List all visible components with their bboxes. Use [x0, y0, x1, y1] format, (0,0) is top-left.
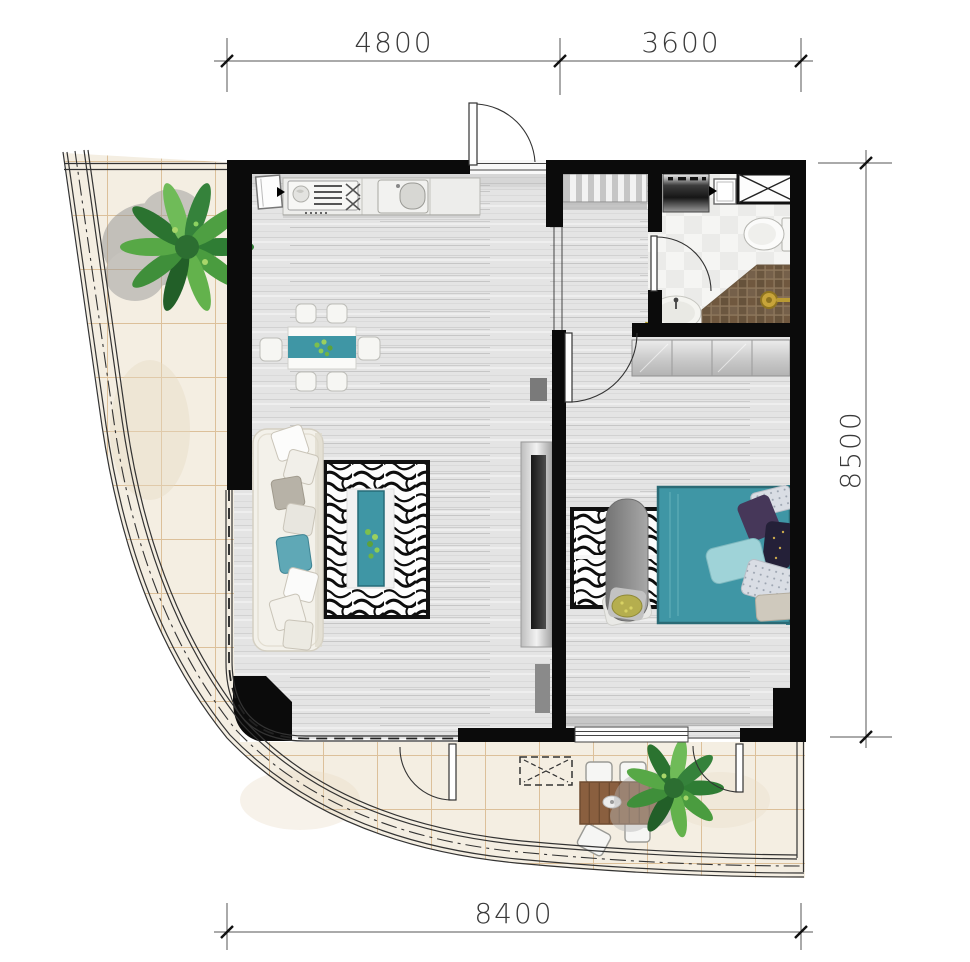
wall-top-right — [546, 160, 806, 174]
washing-machine-icon — [663, 174, 709, 212]
dining-chair — [296, 372, 316, 391]
outdoor-chair — [586, 762, 612, 783]
dim-label-4800: 4800 — [354, 26, 433, 59]
dining-chair — [327, 372, 347, 391]
bedroom-bench — [601, 499, 652, 626]
cooktop-burners-icon — [288, 181, 360, 214]
dim-label-8500: 8500 — [834, 410, 867, 489]
dining-chair — [296, 304, 316, 323]
wall-right — [790, 160, 806, 742]
wall-living-bedroom — [552, 330, 566, 742]
entry-door — [469, 103, 535, 165]
wall-entry-stub — [546, 174, 563, 227]
entry-threshold — [470, 160, 546, 174]
coffee-table — [358, 491, 384, 586]
table-runner — [288, 336, 356, 358]
wall-bath-south — [632, 323, 792, 337]
wall-left — [227, 160, 252, 490]
kitchen-counter — [256, 175, 480, 218]
bedroom-wardrobe — [632, 340, 790, 376]
kitchen-sink-icon — [378, 180, 428, 213]
dim-label-8400: 8400 — [474, 897, 553, 930]
hall-closet — [563, 174, 647, 209]
wall-corner-block — [773, 688, 806, 742]
bedroom-window — [575, 727, 688, 742]
pouf — [612, 595, 642, 617]
floor-plan-drawing: 4800 3600 8500 8400 — [0, 0, 970, 962]
shaft-cross-icon — [738, 174, 798, 203]
dim-label-3600: 3600 — [641, 26, 720, 59]
bed — [658, 485, 799, 625]
dining-chair — [327, 304, 347, 323]
floor-plan-canvas: 4800 3600 8500 8400 — [0, 0, 970, 962]
toilet-icon — [744, 218, 792, 251]
dining-chair — [358, 337, 380, 360]
sofa — [253, 424, 323, 651]
dimension-top: 4800 3600 — [214, 26, 813, 95]
dining-chair — [260, 338, 282, 361]
wall-top-left — [227, 160, 470, 174]
tv-screen — [531, 455, 546, 629]
wall-bottom-mid — [458, 728, 575, 742]
dimension-right: 8500 — [818, 150, 892, 748]
wall-bath-left-top — [648, 174, 662, 232]
dimension-bottom: 8400 — [214, 897, 813, 950]
